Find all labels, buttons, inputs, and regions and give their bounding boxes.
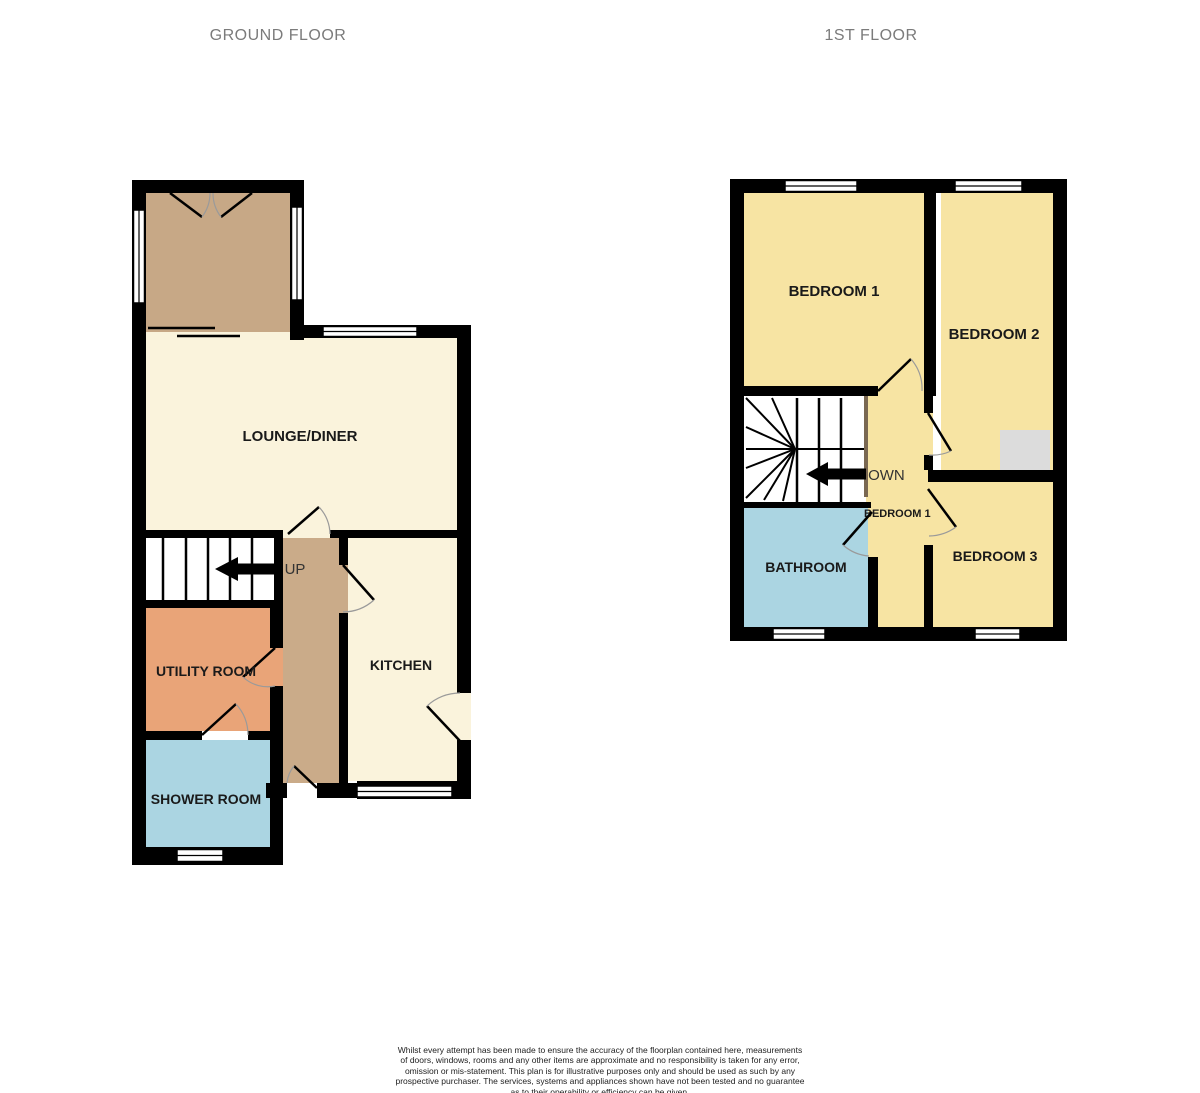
disclaimer: Whilst every attempt has been made to en… [380,1034,820,1093]
floorplan-page: GROUND FLOOR 1ST FLOOR [0,0,1200,1093]
cupboard [1000,430,1050,470]
floorplan-drawing: LOUNGE/DINER KITCHEN UTILITY ROOM SHOWER… [0,0,1200,1093]
landing-bedroom1-label: BEDROOM 1 [864,508,931,520]
kitchen-label: KITCHEN [370,657,432,673]
first-stairs [744,392,866,502]
shower-label: SHOWER ROOM [151,791,261,807]
ground-floor-plan: LOUNGE/DINER KITCHEN UTILITY ROOM SHOWER… [132,180,471,865]
bathroom-label: BATHROOM [765,559,846,575]
lounge-label: LOUNGE/DINER [242,428,357,445]
utility-label: UTILITY ROOM [156,663,256,679]
bedroom1-label: BEDROOM 1 [789,283,880,300]
disclaimer-text: Whilst every attempt has been made to en… [380,1045,820,1093]
room-conservatory [146,193,290,332]
bedroom3-label: BEDROOM 3 [953,548,1038,564]
up-label: UP [285,561,306,578]
first-floor-plan: DOWN BEDROOM 1 [730,179,1067,641]
bedroom2-label: BEDROOM 2 [949,326,1040,343]
